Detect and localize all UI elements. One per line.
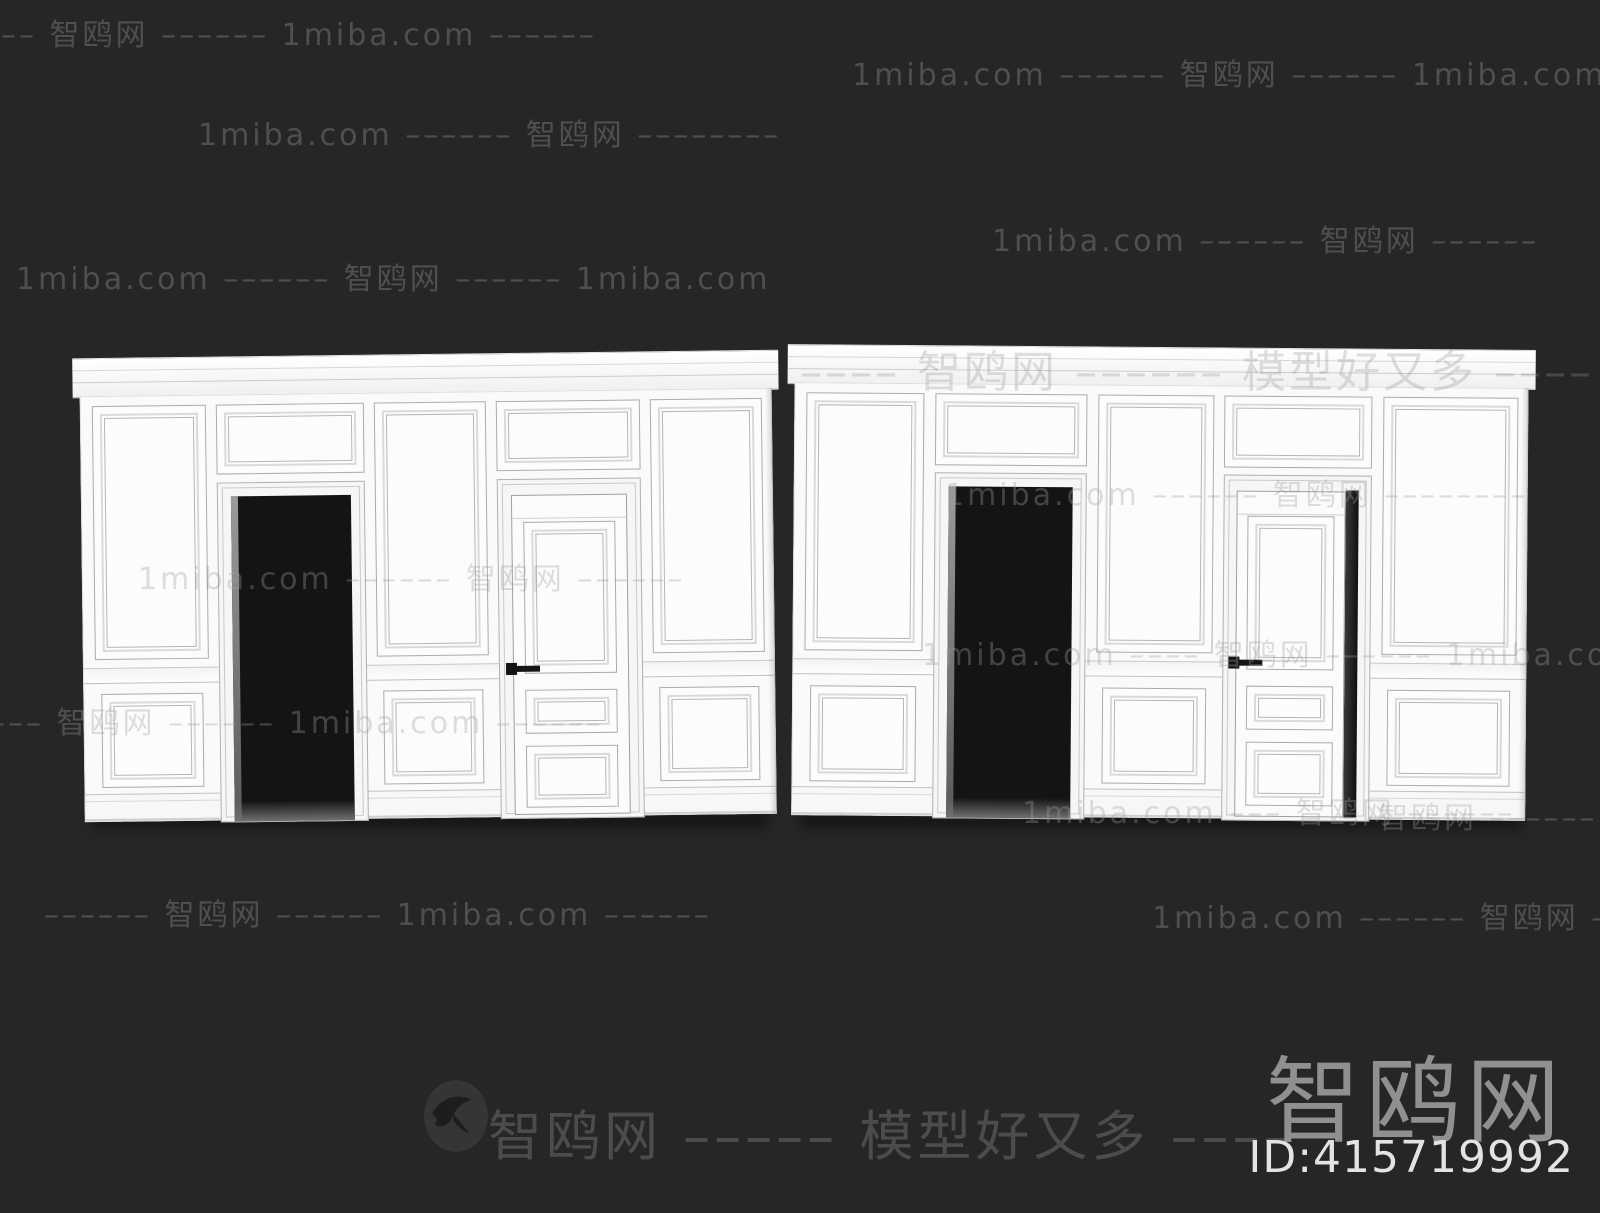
chair-rail	[84, 660, 774, 684]
model-preview-image: –––– 智鸥网 –––––– 1miba.com –––––– 1miba.c…	[0, 0, 1600, 1213]
chair-rail	[793, 658, 1525, 680]
door-casing	[1221, 474, 1372, 821]
watermark-row: 1miba.com –––––– 智鸥网 ––––––––	[198, 110, 781, 154]
overdoor-panel	[496, 399, 641, 471]
wainscot-panel	[809, 685, 916, 782]
doorway-opening	[946, 486, 1073, 818]
wainscot-panel	[1101, 688, 1206, 785]
door-leaf	[1234, 491, 1346, 818]
wainscot-panel	[383, 689, 484, 784]
wall-body	[80, 388, 777, 822]
wall-paneling-left	[79, 350, 777, 822]
wall-panel-tall	[804, 392, 924, 651]
door-casing	[497, 477, 645, 819]
doorway-casing	[217, 481, 369, 823]
seagull-icon	[424, 1080, 488, 1152]
wainscot-panel	[659, 686, 760, 781]
wall-panel-tall	[92, 405, 209, 660]
door-handle-icon	[510, 666, 540, 672]
bottom-watermark-text: 智鸥网 ––––– 模型好又多 ––––	[488, 1092, 1295, 1171]
wall-body	[791, 382, 1528, 821]
door-panel-upper	[523, 521, 617, 674]
door-ajar-gap	[1343, 490, 1359, 817]
door-panel-middle	[1246, 686, 1333, 731]
overdoor-panel	[1224, 396, 1373, 469]
watermark-row: 1miba.com –––––– 智鸥网 –––––– 1miba.com	[852, 50, 1600, 94]
doorway-casing	[932, 472, 1087, 819]
door-panel-upper	[1246, 516, 1334, 671]
doorway-opening	[231, 495, 355, 821]
watermark-row: 1miba.com –––––– 智鸥网 ––––––	[992, 216, 1539, 260]
watermark-row: –––––– 智鸥网 –––––– 1miba.com ––––––	[44, 890, 712, 934]
watermark-row: –––– 智鸥网 –––––– 1miba.com ––––––	[0, 10, 597, 54]
watermark-row: 1miba.com –––––– 智鸥网 ––––––	[1152, 893, 1600, 937]
wall-panel-tall	[1096, 395, 1214, 654]
door-panel-middle	[525, 689, 618, 734]
wall-panel-tall	[1381, 397, 1518, 656]
door-handle-icon	[1232, 660, 1262, 666]
overdoor-panel	[935, 393, 1088, 466]
door-panel-lower	[526, 745, 619, 808]
baseboard	[792, 786, 1524, 820]
door-panel-lower	[1245, 742, 1332, 807]
wall-panel-tall	[374, 401, 489, 656]
wall-paneling-right	[791, 344, 1529, 821]
wall-panel-tall	[650, 398, 765, 653]
model-id-text: ID:415719992	[1248, 1132, 1574, 1183]
watermark-row: 1miba.com –––––– 智鸥网 –––––– 1miba.com	[16, 254, 771, 298]
door-leaf	[511, 494, 631, 815]
wainscot-panel	[101, 693, 204, 788]
overdoor-panel	[216, 403, 365, 475]
wainscot-panel	[1386, 690, 1510, 787]
